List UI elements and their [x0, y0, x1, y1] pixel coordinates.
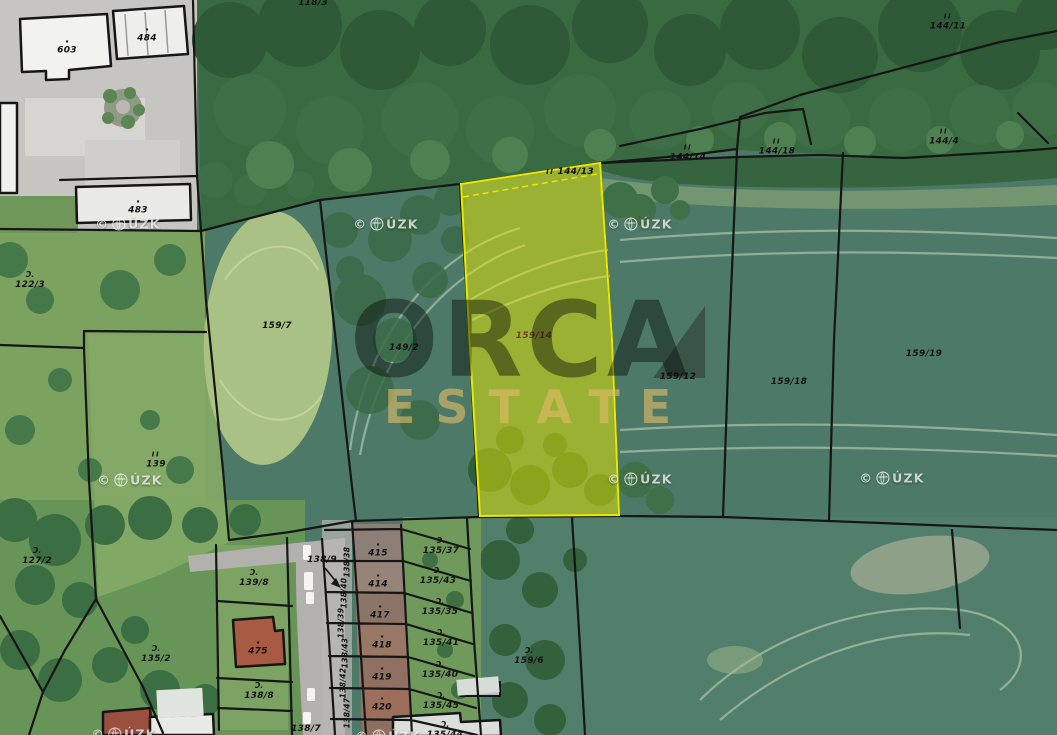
brand-watermark-line2: ESTATE: [384, 384, 691, 430]
map-canvas[interactable]: ▪603▪484▪483118/3II144/11II144/14II144/1…: [0, 0, 1057, 735]
brand-watermark-line1: ORCA: [350, 288, 691, 392]
